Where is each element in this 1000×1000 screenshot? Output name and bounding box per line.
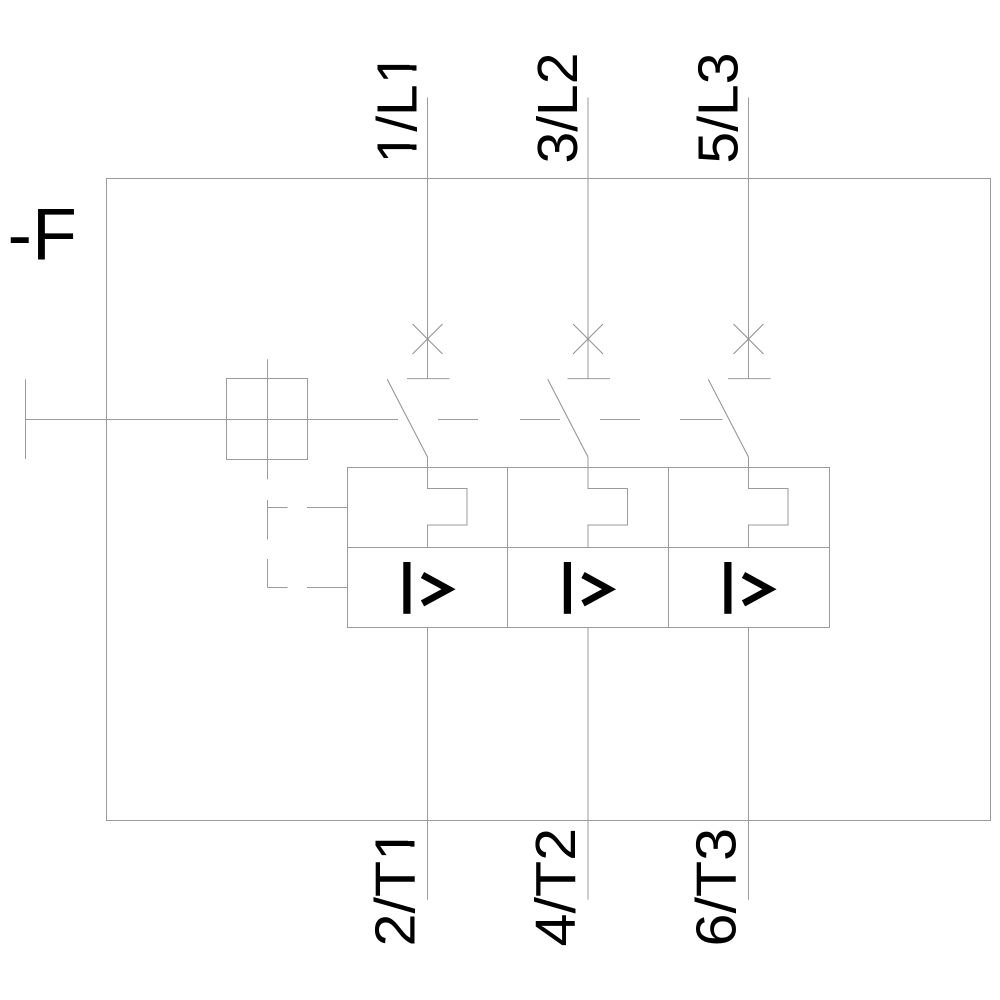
svg-text:2/T1: 2/T1 bbox=[364, 828, 428, 947]
svg-text:1/L1: 1/L1 bbox=[365, 53, 429, 164]
svg-text:-F: -F bbox=[8, 193, 77, 276]
svg-text:4/T2: 4/T2 bbox=[524, 828, 588, 947]
svg-text:6/T3: 6/T3 bbox=[685, 828, 749, 947]
svg-text:3/L2: 3/L2 bbox=[526, 53, 590, 164]
svg-text:5/L3: 5/L3 bbox=[686, 53, 750, 164]
